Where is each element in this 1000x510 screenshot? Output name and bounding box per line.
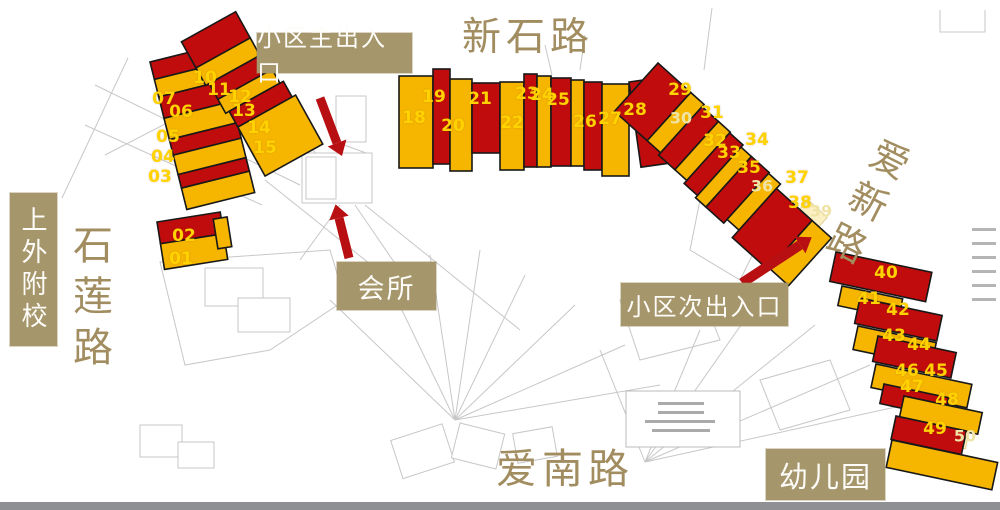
building-number-37: 37	[785, 168, 809, 188]
road-label-shilian: 石莲路	[60, 224, 118, 377]
building-number-50: 50	[954, 427, 976, 446]
main-entrance-label: 小区主出入口	[257, 33, 412, 73]
building-number-44: 44	[907, 335, 931, 355]
building-number-20: 20	[441, 116, 465, 136]
building-number-34: 34	[745, 130, 769, 150]
building-number-18: 18	[402, 108, 426, 128]
school-label: 上外附校	[10, 193, 57, 346]
building-number-42: 42	[886, 300, 910, 320]
building-number-02: 02	[172, 226, 196, 246]
plan-notes-column	[972, 228, 996, 301]
building-number-27: 27	[598, 109, 622, 129]
building-number-14: 14	[247, 118, 271, 138]
building-number-30: 30	[670, 109, 692, 128]
building-number-07: 07	[152, 89, 176, 109]
building-number-35: 35	[737, 158, 761, 178]
building-number-49: 49	[923, 419, 947, 439]
building-number-28: 28	[623, 100, 647, 120]
plan-legend-box	[626, 391, 740, 447]
road-label-xinshi: 新石路	[462, 6, 594, 62]
kindergarten-label: 幼儿园	[766, 449, 885, 500]
building-number-36: 36	[751, 177, 773, 196]
building-number-38: 38	[788, 193, 812, 213]
building-number-03: 03	[148, 167, 172, 187]
building-number-48: 48	[935, 390, 959, 410]
building-number-04: 04	[151, 147, 175, 167]
building-number-26: 26	[573, 112, 597, 132]
building-number-21: 21	[468, 89, 492, 109]
building-number-31: 31	[700, 103, 724, 123]
building-number-05: 05	[156, 127, 180, 147]
road-label-ainan: 爱南路	[496, 435, 634, 495]
building-number-29: 29	[668, 80, 692, 100]
residential-site-plan: 0102030405060710111213141518192021222324…	[0, 0, 1000, 510]
building-number-40: 40	[874, 263, 898, 283]
building-number-01: 01	[169, 249, 193, 269]
building-number-43: 43	[882, 326, 906, 346]
building-number-19: 19	[422, 87, 446, 107]
clubhouse-label: 会所	[337, 262, 436, 310]
building-number-25: 25	[546, 90, 570, 110]
secondary-entrance-label: 小区次出入口	[621, 283, 788, 326]
building-number-45: 45	[924, 361, 948, 381]
building-number-47: 47	[900, 377, 924, 397]
clubhouse-arrow	[329, 204, 349, 258]
bottom-edge-bar	[0, 502, 1000, 510]
building-number-41: 41	[857, 289, 881, 309]
building-number-15: 15	[253, 138, 277, 158]
building-number-22: 22	[500, 113, 524, 133]
